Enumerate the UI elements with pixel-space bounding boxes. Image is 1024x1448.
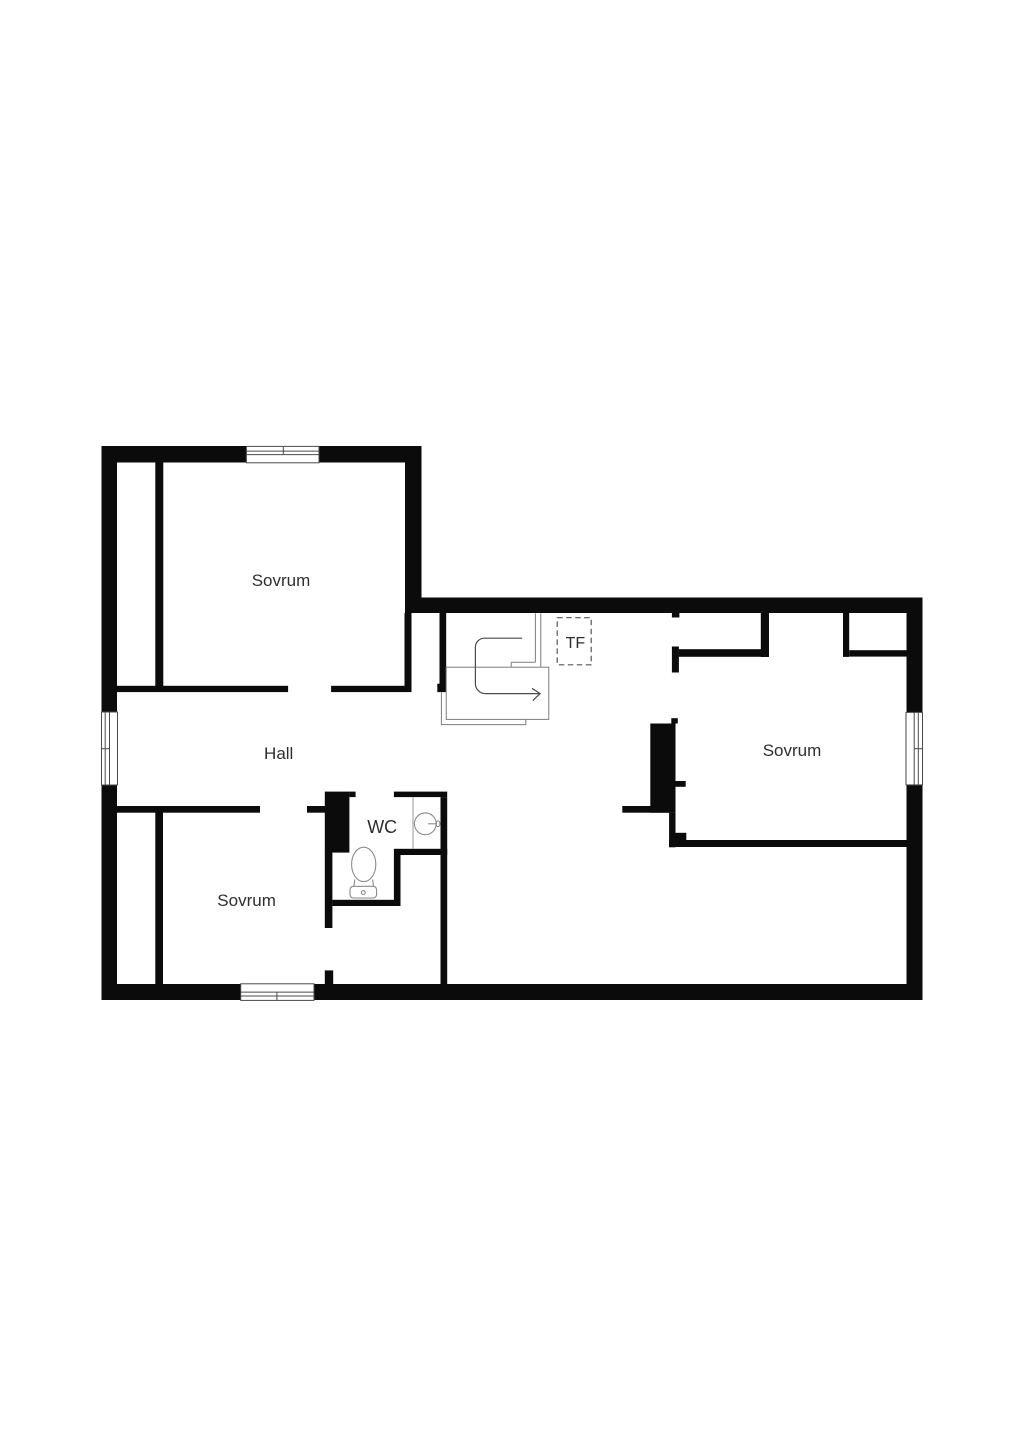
svg-text:WC: WC bbox=[367, 817, 397, 837]
svg-text:Sovrum: Sovrum bbox=[252, 571, 311, 590]
svg-text:Sovrum: Sovrum bbox=[217, 891, 276, 910]
svg-text:TF: TF bbox=[566, 635, 586, 652]
svg-text:Sovrum: Sovrum bbox=[763, 741, 822, 760]
svg-text:Hall: Hall bbox=[264, 744, 293, 763]
